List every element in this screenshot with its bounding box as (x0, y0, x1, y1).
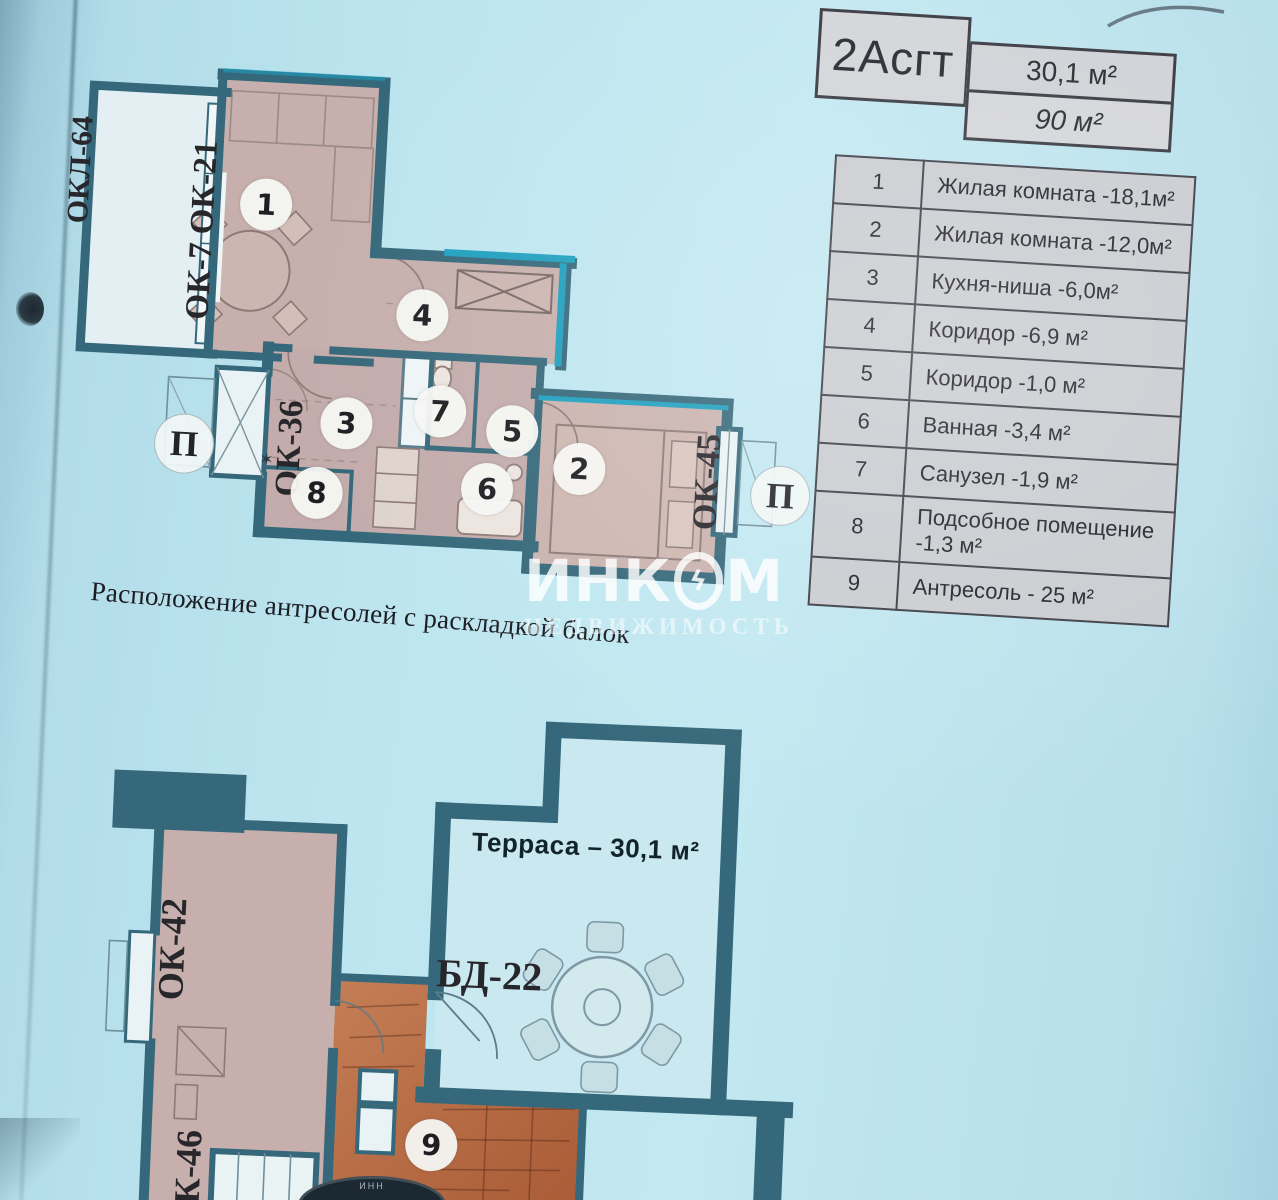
stamp-text: ИНН (359, 1181, 384, 1200)
upper-floorplan: ОКЛ-64 ОК-7 ОК-21 ОК-36 ОК-45 П П ✶ 1 4 … (25, 35, 854, 627)
kitchen-counter (373, 447, 419, 529)
apartment-type-cell: 2Асгт (815, 8, 972, 107)
star-icon: ✶ (259, 450, 274, 471)
wardrobe-box (456, 270, 553, 313)
area-cells: 30,1 м² 90 м² (963, 41, 1177, 153)
label-ok-45: ОК-45 (686, 433, 729, 531)
row-num: 4 (824, 299, 915, 352)
row-num: 5 (821, 347, 912, 400)
row-num: 7 (816, 443, 907, 496)
row-num: 1 (833, 155, 924, 208)
legend-block: 2Асгт 30,1 м² 90 м² 1 Жилая комната -18,… (784, 8, 1206, 627)
row-num: 3 (827, 251, 918, 304)
window-ok46 (210, 1151, 316, 1200)
label-okl-64: ОКЛ-64 (61, 115, 101, 224)
right-wall-band (752, 1104, 785, 1200)
room-legend-table: 1 Жилая комната -18,1м² 2 Жилая комната … (808, 154, 1197, 627)
lower-floorplan: Терраса – 30,1 м² БД-22 ОК-42 К-46 9 (58, 690, 819, 1200)
label-ok-42: ОК-42 (149, 897, 195, 1001)
mezzanine-windows (357, 1070, 396, 1153)
row-num: 2 (830, 203, 921, 256)
label-bd-22: БД-22 (435, 949, 543, 1000)
row-num: 9 (809, 556, 900, 609)
row-num: 8 (812, 491, 904, 562)
label-k-46: К-46 (166, 1129, 211, 1200)
plan-header: 2Асгт 30,1 м² 90 м² (812, 8, 1205, 154)
photographed-floorplan-page: ОКЛ-64 ОК-7 ОК-21 ОК-36 ОК-45 П П ✶ 1 4 … (0, 0, 1278, 1200)
window-ok42 (105, 930, 155, 1042)
row-num: 6 (818, 395, 909, 448)
